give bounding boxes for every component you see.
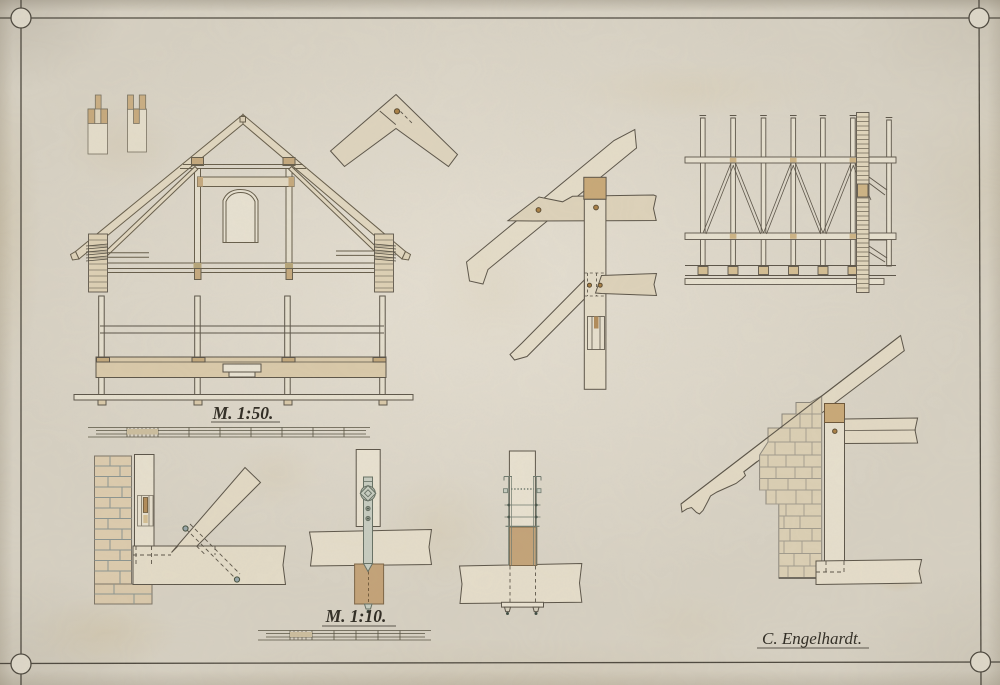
svg-text:M. 1:10.: M. 1:10.	[325, 606, 387, 626]
svg-text:M. 1:50.: M. 1:50.	[212, 403, 274, 423]
svg-text:C. Engelhardt.: C. Engelhardt.	[762, 629, 862, 648]
